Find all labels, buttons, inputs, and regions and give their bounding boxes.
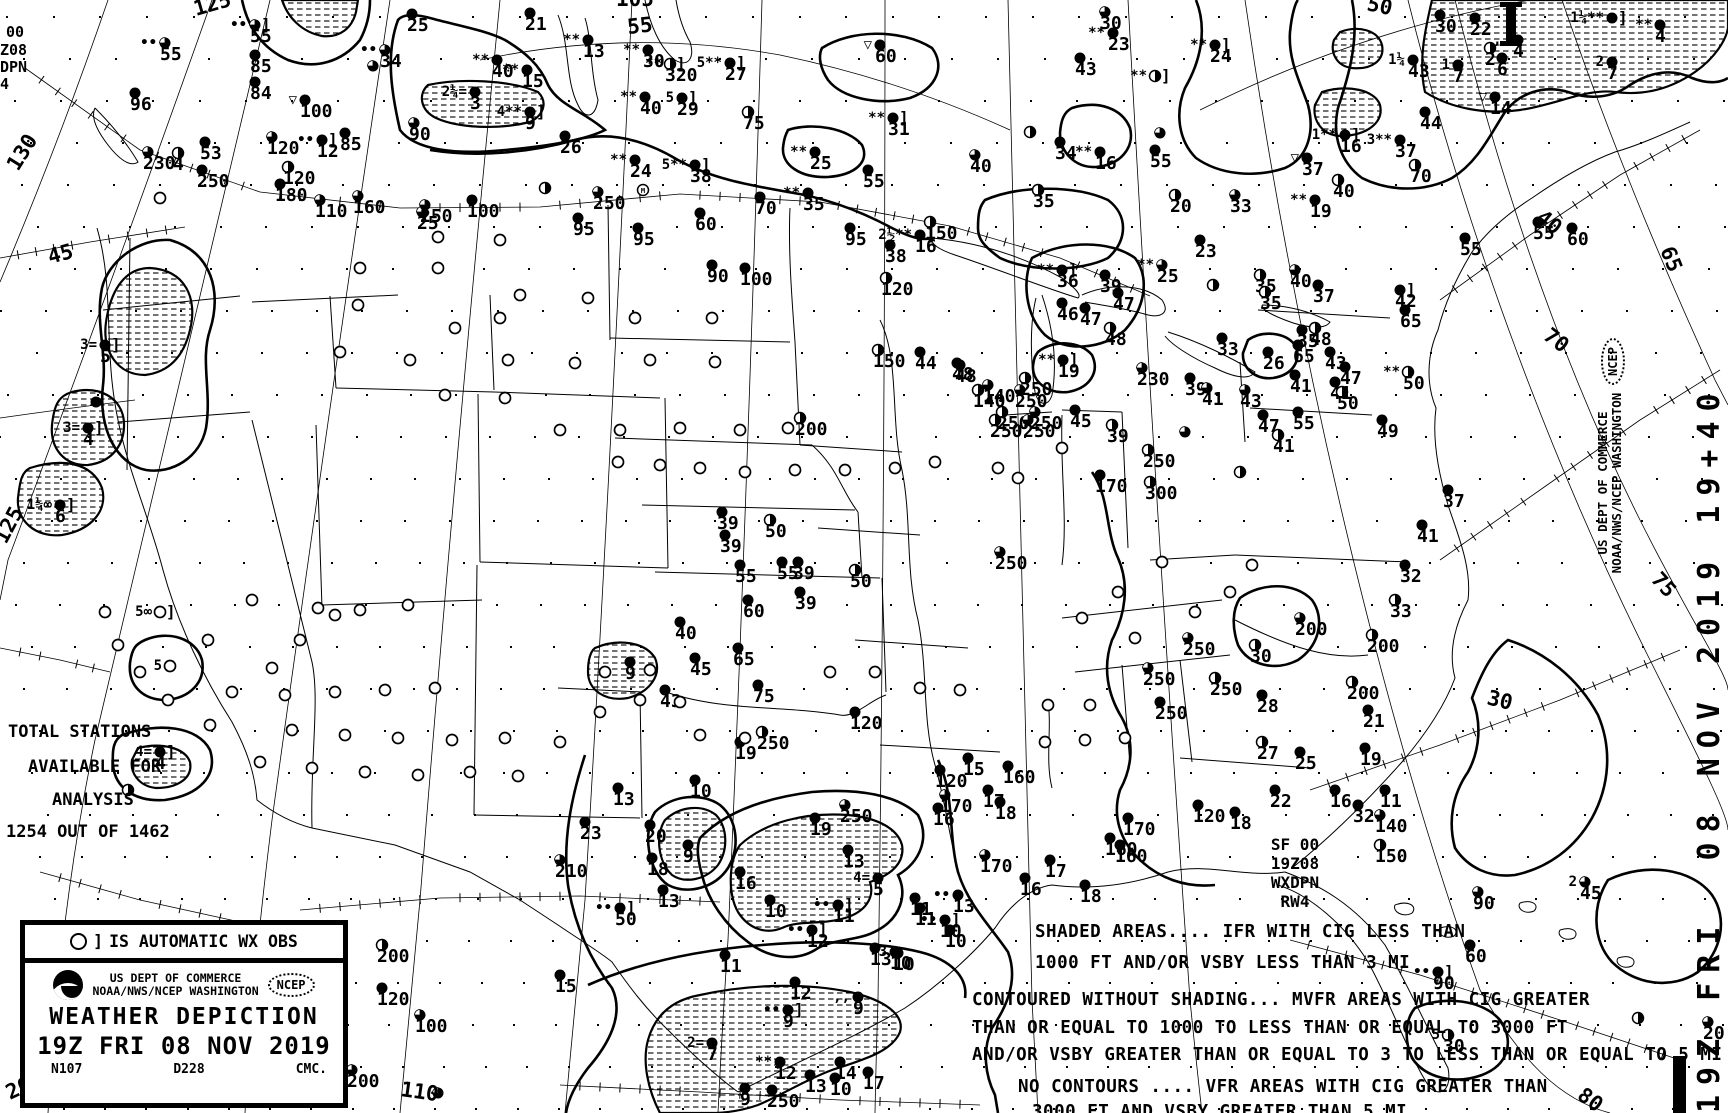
station-plot: 24**	[610, 152, 652, 182]
station-plot: 230	[1137, 363, 1170, 391]
station-plot	[287, 725, 298, 736]
station-value: 22	[1470, 19, 1492, 40]
station-value: 47	[1113, 294, 1135, 315]
station-plot: 2	[1485, 43, 1496, 71]
station-plot: 12••]	[297, 130, 339, 162]
station-value: 250	[757, 733, 790, 754]
station-wx-symbol: ••	[933, 887, 950, 903]
station-plot	[255, 757, 266, 768]
station-plot: 13	[613, 783, 635, 811]
station-plot	[707, 313, 718, 324]
station-plot: 40	[970, 150, 992, 178]
station-wx-symbol: ••	[763, 1002, 780, 1018]
station-plot	[635, 695, 646, 706]
fold-mark-top-serif	[1500, 2, 1522, 7]
station-value: 20	[645, 826, 667, 847]
station-plot	[330, 610, 341, 621]
station-value: 9	[740, 1089, 751, 1110]
station-plot	[1085, 700, 1096, 711]
product-id-line: SF 00	[1271, 835, 1319, 854]
station-plot	[113, 640, 124, 651]
station-value: 32	[1353, 806, 1375, 827]
station-value: 13	[658, 891, 680, 912]
station-plot: 35	[1260, 287, 1282, 315]
station-value: 250	[1183, 639, 1216, 660]
station-plot	[163, 695, 174, 706]
station-value: 35	[1260, 293, 1282, 314]
automatic-station-bracket: ]	[328, 130, 338, 149]
station-plot	[513, 771, 524, 782]
station-wx-symbol: **	[1130, 68, 1147, 84]
legend-auto-note: ] IS AUTOMATIC WX OBS	[25, 925, 343, 963]
station-value: 43	[1408, 61, 1430, 82]
station-plot	[740, 733, 751, 744]
station-plot: 19**]	[1038, 350, 1080, 382]
station-plot: 46	[1057, 298, 1079, 326]
station-value: 230	[143, 153, 176, 174]
station-value: 200	[377, 946, 410, 967]
station-plot: M	[638, 185, 649, 196]
latlon-label: 70	[1539, 323, 1574, 357]
vertical-datetime: 19Z FRI 08 NOV 2019 19+40	[1692, 133, 1727, 1113]
station-plot: 95	[633, 223, 655, 251]
station-plot: 26	[560, 131, 582, 159]
station-plot: 452	[1569, 874, 1602, 904]
station-value: 37	[1302, 159, 1324, 180]
station-value: 110	[315, 201, 348, 222]
station-value: 4	[83, 429, 94, 450]
station-wx-symbol: 2	[1569, 874, 1577, 890]
legend-footer-d228: D228	[173, 1062, 204, 1077]
station-plot: 250	[1143, 663, 1176, 691]
automatic-station-bracket: ]	[626, 898, 636, 917]
station-plot: 96	[130, 88, 152, 116]
latlon-label: 110	[399, 1077, 440, 1106]
station-plot	[675, 697, 686, 708]
station-plot	[655, 460, 666, 471]
station-wx-symbol: **	[645, 56, 662, 72]
weather-depiction-chart: 55••55••]858496100▽12••]8512012018011016…	[0, 0, 1728, 1113]
automatic-station-bracket: ]	[844, 895, 854, 914]
station-plot: 44	[915, 347, 937, 375]
station-plot	[1235, 467, 1246, 478]
station-value: 200	[1367, 636, 1400, 657]
station-value: 200	[347, 1071, 380, 1092]
station-value: 150	[873, 351, 906, 372]
station-wx-symbol: **	[1088, 25, 1105, 41]
station-value: 23	[1195, 241, 1217, 262]
station-plot: 250	[840, 800, 873, 828]
station-value: 11	[1380, 791, 1402, 812]
station-plot: 373**	[1367, 132, 1417, 162]
station-value: 25	[810, 153, 832, 174]
station-value: 60	[875, 46, 897, 67]
station-value: 40	[1333, 181, 1355, 202]
station-value: 200	[1295, 619, 1328, 640]
station-value: 3	[470, 93, 481, 114]
station-plot	[645, 355, 656, 366]
station-plot	[570, 358, 581, 369]
station-plot	[930, 457, 941, 468]
station-plot	[1013, 473, 1024, 484]
agency-line2: NOAA/NWS/NCEP WASHINGTON	[92, 984, 258, 998]
station-value: 40	[970, 156, 992, 177]
station-plot	[280, 690, 291, 701]
station-wx-symbol: 1¼∞	[27, 497, 53, 513]
note-vfr-2: 3000 FT AND VSBY GREATER THAN 5 MI	[1032, 1102, 1407, 1113]
station-wx-symbol: **	[783, 185, 800, 201]
station-plot	[1190, 607, 1201, 618]
station-plot: 39	[1107, 420, 1129, 448]
station-plot: 43	[1075, 53, 1097, 81]
station-wx-symbol: ,,	[833, 989, 850, 1005]
station-value: 95	[845, 229, 867, 250]
station-value: 19	[1310, 201, 1332, 222]
automatic-station-bracket: ]	[1069, 350, 1079, 369]
station-wx-symbol: **	[1383, 364, 1400, 380]
station-value: 45	[1070, 411, 1092, 432]
station-plot: 16**	[1075, 144, 1117, 174]
station-value: 85	[340, 134, 362, 155]
station-plot: 45	[1070, 405, 1092, 433]
station-value: 70	[755, 198, 777, 219]
product-id-line: WXDPN	[1271, 873, 1319, 892]
station-plot: 34••	[360, 42, 402, 72]
station-wx-symbol: **	[1137, 257, 1154, 273]
station-plot: 110	[315, 195, 348, 223]
corner-id-line: 00	[6, 24, 24, 41]
station-plot	[313, 603, 324, 614]
station-plot: 140	[1375, 810, 1408, 838]
station-plot	[335, 347, 346, 358]
station-plot: 5∞]	[135, 602, 176, 621]
station-value: 100	[415, 1016, 448, 1037]
station-plot: 17	[863, 1067, 885, 1095]
station-plot: 70	[755, 192, 777, 220]
corner-id-line: Z08	[0, 42, 27, 59]
station-plot	[465, 767, 476, 778]
station-plot: 37▽	[1291, 150, 1324, 180]
station-plot: 33	[1230, 190, 1252, 218]
station-plot	[393, 733, 404, 744]
station-value: 18	[1080, 886, 1102, 907]
station-plot	[330, 687, 341, 698]
note-contoured-3: AND/OR VSBY GREATER THAN OR EQUAL TO 3 T…	[972, 1045, 1722, 1065]
station-value: 25	[1157, 266, 1179, 287]
station-plot	[645, 665, 656, 676]
station-value: 100	[467, 201, 500, 222]
station-value: 39	[795, 593, 817, 614]
station-value: 41	[1202, 389, 1224, 410]
latlon-label: 130	[2, 130, 42, 175]
station-plot: 50**	[1383, 364, 1425, 394]
station-value: 15	[522, 71, 544, 92]
station-plot	[735, 425, 746, 436]
station-plot: 275**]	[697, 53, 747, 85]
station-wx-symbol: **	[1290, 192, 1307, 208]
station-value: 16	[735, 873, 757, 894]
station-plot: 50	[1337, 387, 1359, 415]
agency-line1: US DEPT OF COMMERCE	[110, 971, 242, 985]
station-value: 37	[1443, 491, 1465, 512]
station-value: 48	[955, 366, 977, 387]
station-plot	[433, 263, 444, 274]
station-plot: 41	[1202, 383, 1224, 411]
ncep-logo-icon: NCEP	[268, 973, 315, 997]
station-value: 75	[743, 113, 765, 134]
station-plot	[870, 667, 881, 678]
station-plot: 90	[1473, 887, 1495, 915]
automatic-station-bracket: ]	[1161, 66, 1171, 85]
station-value: 20	[1170, 196, 1192, 217]
station-plot	[403, 600, 414, 611]
station-wx-symbol: ••	[230, 17, 247, 33]
station-value: 60	[743, 601, 765, 622]
station-value: 210	[555, 861, 588, 882]
station-plot	[495, 313, 506, 324]
station-plot: 47	[1080, 303, 1102, 331]
station-plot: 9	[683, 840, 694, 868]
station-wx-symbol: 1¼**	[1570, 10, 1604, 26]
station-value: 70	[1410, 166, 1432, 187]
station-value: 85	[250, 56, 272, 77]
station-value: 16	[1330, 791, 1352, 812]
station-value: 28	[1257, 696, 1279, 717]
station-plot	[613, 457, 624, 468]
station-plot: 11	[720, 950, 742, 978]
station-value: 65	[1400, 311, 1422, 332]
station-value: 9	[853, 998, 864, 1019]
station-plot: 21	[525, 8, 547, 36]
fold-mark-bottom	[1673, 1056, 1686, 1113]
station-value: 23	[580, 823, 602, 844]
station-value: 250	[1143, 451, 1176, 472]
station-plot: 120	[267, 132, 300, 160]
station-value: 44	[1420, 113, 1442, 134]
station-value: 23	[1108, 34, 1130, 55]
station-plot: 94**]	[497, 102, 546, 134]
station-plot: 40	[1333, 175, 1355, 203]
station-plot: 16	[1330, 785, 1352, 813]
station-plot	[783, 423, 794, 434]
station-plot	[675, 423, 686, 434]
station-plot	[583, 293, 594, 304]
station-value: 250	[990, 421, 1023, 442]
note-shaded-1: SHADED AREAS.... IFR WITH CIG LESS THAN	[1035, 922, 1465, 942]
station-plot	[955, 685, 966, 696]
fold-mark-top	[1506, 4, 1516, 44]
station-value: 2	[1485, 49, 1496, 70]
station-wx-symbol: **	[1038, 352, 1055, 368]
station-value: 11	[720, 956, 742, 977]
station-plot: 250	[1210, 673, 1243, 701]
station-value: 46	[1057, 304, 1079, 325]
station-wx-symbol: **	[623, 42, 640, 58]
station-plot: 33	[1217, 333, 1239, 361]
agency-text: US DEPT OF COMMERCENOAA/NWS/NCEP WASHING…	[92, 972, 258, 998]
station-value: 10	[945, 931, 967, 952]
station-value: 120	[935, 771, 968, 792]
station-plot: 200	[795, 413, 828, 441]
station-plot: 39	[717, 507, 739, 535]
station-value: 55	[160, 44, 182, 65]
station-value: 55	[1293, 413, 1315, 434]
station-value: 55	[1150, 151, 1172, 172]
station-value: 34	[1055, 143, 1077, 164]
station-plot	[495, 235, 506, 246]
station-plot	[1120, 733, 1131, 744]
legend-footer-n107: N107	[51, 1062, 82, 1077]
station-plot: **]	[1130, 66, 1171, 85]
station-value: 10	[890, 953, 912, 974]
station-plot	[1043, 700, 1054, 711]
station-plot	[1633, 1013, 1644, 1024]
station-wx-symbol: **	[610, 152, 627, 168]
station-value: 37	[1313, 286, 1335, 307]
station-wx-symbol: 2½**	[878, 227, 912, 243]
station-plot: 37	[1313, 280, 1335, 308]
station-value: 65	[1293, 346, 1315, 367]
automatic-station-bracket: ]	[736, 53, 746, 72]
station-value: 26	[560, 137, 582, 158]
station-value: 75	[753, 686, 775, 707]
station-value: 60	[695, 214, 717, 235]
station-plot: 60	[1465, 940, 1487, 968]
station-plot: 160	[353, 191, 386, 219]
station-value: 13	[843, 851, 865, 872]
station-plot: 90	[707, 260, 729, 288]
vertical-agency-text: US DEPT OF COMMERCENOAA/NWS/NCEP WASHING…	[1596, 388, 1624, 578]
station-value: 9	[683, 846, 694, 867]
open-circle-symbol	[70, 933, 87, 950]
station-value: 160	[1003, 767, 1036, 788]
stats-count: 1254 OUT OF 1462	[6, 822, 170, 842]
station-plot: 18	[995, 797, 1017, 825]
automatic-station-bracket: ]	[261, 15, 271, 34]
station-plot	[615, 425, 626, 436]
station-plot	[1180, 427, 1191, 438]
station-wx-symbol: 5**	[697, 55, 722, 71]
station-plot	[1155, 128, 1166, 139]
station-plot: 38	[885, 240, 907, 268]
station-value: 30	[1435, 16, 1457, 37]
station-plot	[600, 667, 611, 678]
station-value: 43	[1240, 391, 1262, 412]
station-value: 170	[980, 856, 1013, 877]
station-plot: 16	[1020, 873, 1042, 901]
station-value: 11	[915, 909, 937, 930]
station-value: 40	[640, 98, 662, 119]
station-wx-symbol: **	[755, 1054, 772, 1070]
station-value: 95	[633, 229, 655, 250]
station-plot	[503, 355, 514, 366]
automatic-station-bracket: ]	[94, 418, 104, 437]
station-value: 53	[200, 143, 222, 164]
station-wx-symbol: ••	[297, 132, 314, 148]
station-plot: 37	[1443, 485, 1465, 513]
station-value: 49	[1377, 421, 1399, 442]
station-plot: 50••]	[595, 898, 637, 930]
station-plot	[500, 393, 511, 404]
station-plot	[1247, 560, 1258, 571]
station-value: 120	[1193, 806, 1226, 827]
station-wx-symbol: 2	[1596, 54, 1604, 70]
station-value: 55	[777, 563, 799, 584]
product-id-block: SF 0019Z08WXDPNRW4	[1255, 835, 1335, 911]
station-plot: 200	[1295, 613, 1328, 641]
station-plot: 5	[154, 658, 176, 674]
fold-mark-top-serif	[1500, 41, 1522, 46]
station-value: 48	[1105, 329, 1127, 350]
station-value: 40	[675, 623, 697, 644]
station-value: 55	[735, 566, 757, 587]
corner-id-line: 4	[0, 76, 9, 93]
station-value: 150	[925, 223, 958, 244]
station-value: 38	[885, 246, 907, 267]
station-plot: 55	[735, 560, 757, 588]
station-wx-symbol: **	[1075, 144, 1092, 160]
station-plot: 150	[1375, 840, 1408, 868]
station-value: 120	[881, 279, 914, 300]
station-plot: 250	[1155, 697, 1188, 725]
station-plot	[155, 193, 166, 204]
station-value: 19	[1360, 749, 1382, 770]
station-plot: 23	[1195, 235, 1217, 263]
station-plot	[890, 463, 901, 474]
station-value: 37	[1395, 141, 1417, 162]
station-value: 16	[1020, 879, 1042, 900]
station-value: 13	[613, 789, 635, 810]
station-wx-symbol: 4**	[497, 104, 522, 120]
station-value: 250	[767, 1091, 800, 1112]
station-plot: 60	[1567, 223, 1589, 251]
station-plot: 210	[555, 855, 588, 883]
station-value: 7	[707, 1044, 718, 1065]
station-plot	[1080, 735, 1091, 746]
station-plot: 13••	[933, 887, 975, 917]
station-value: 18	[1230, 813, 1252, 834]
vertical-agency-line2: NOAA/NWS/NCEP WASHINGTON	[1609, 393, 1624, 574]
station-value: 250	[1143, 669, 1176, 690]
station-value: 65	[733, 649, 755, 670]
station-plot: 55••]	[230, 15, 272, 47]
note-vfr-1: NO CONTOURS .... VFR AREAS WITH CIG GREA…	[1018, 1077, 1548, 1097]
station-value: 39	[720, 536, 742, 557]
station-value: 250	[995, 553, 1028, 574]
station-plot	[353, 300, 364, 311]
station-value: 25	[1295, 753, 1317, 774]
note-contoured-2: THAN OR EQUAL TO 1000 TO LESS THAN OR EQ…	[972, 1018, 1568, 1038]
station-value: 60	[1465, 946, 1487, 967]
station-plot: 60▽	[864, 37, 897, 67]
station-plot: 18	[1230, 807, 1252, 835]
station-value: 200	[795, 419, 828, 440]
station-wx-symbol: 3	[879, 944, 887, 960]
station-value: 9	[625, 663, 636, 684]
station-plot	[825, 667, 836, 678]
station-value: 95	[573, 219, 595, 240]
automatic-station-bracket: ]	[899, 108, 909, 127]
station-plot	[555, 737, 566, 748]
station-value: 90	[1473, 893, 1495, 914]
station-value: 35	[1033, 191, 1055, 212]
station-value: 15	[555, 976, 577, 997]
station-value: 7	[1607, 63, 1618, 84]
station-value: 120	[850, 713, 883, 734]
station-plot: 100▽	[289, 92, 333, 122]
station-value: 27	[1257, 743, 1279, 764]
station-plot	[740, 467, 751, 478]
